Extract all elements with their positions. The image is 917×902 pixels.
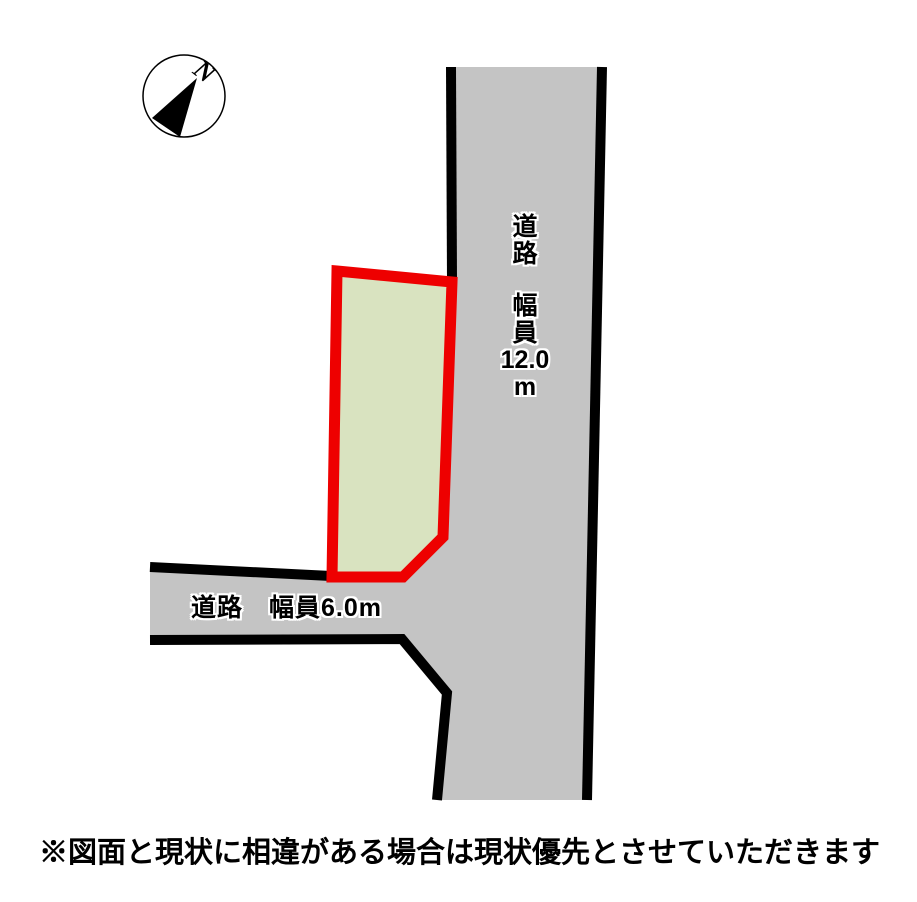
vertical-road-label-line: m xyxy=(494,374,556,401)
vertical-road-label: 道 路 幅 員 12.0 m xyxy=(494,214,556,401)
vertical-road-label-line: 幅 xyxy=(494,293,556,320)
parcel-outline xyxy=(332,271,452,577)
disclaimer-text: ※図面と現状に相違がある場合は現状優先とさせていただきます xyxy=(39,829,899,871)
vertical-road-label-line: 道 xyxy=(494,214,556,241)
vertical-road-label-line: 路 xyxy=(494,241,556,268)
horizontal-road-label: 道路 幅員6.0m xyxy=(191,588,382,624)
site-plan-drawing: N xyxy=(0,0,917,902)
site-plan-canvas: N 道 路 幅 員 12.0 m 道路 幅員6.0m ※図面と現状に相違がある場… xyxy=(0,0,917,902)
vertical-road-label-line: 12.0 xyxy=(494,347,556,374)
vertical-road-left-border xyxy=(451,67,452,282)
compass: N xyxy=(143,54,225,137)
vertical-road-label-line: 員 xyxy=(494,320,556,347)
horizontal-road-bottom-border xyxy=(150,639,447,800)
